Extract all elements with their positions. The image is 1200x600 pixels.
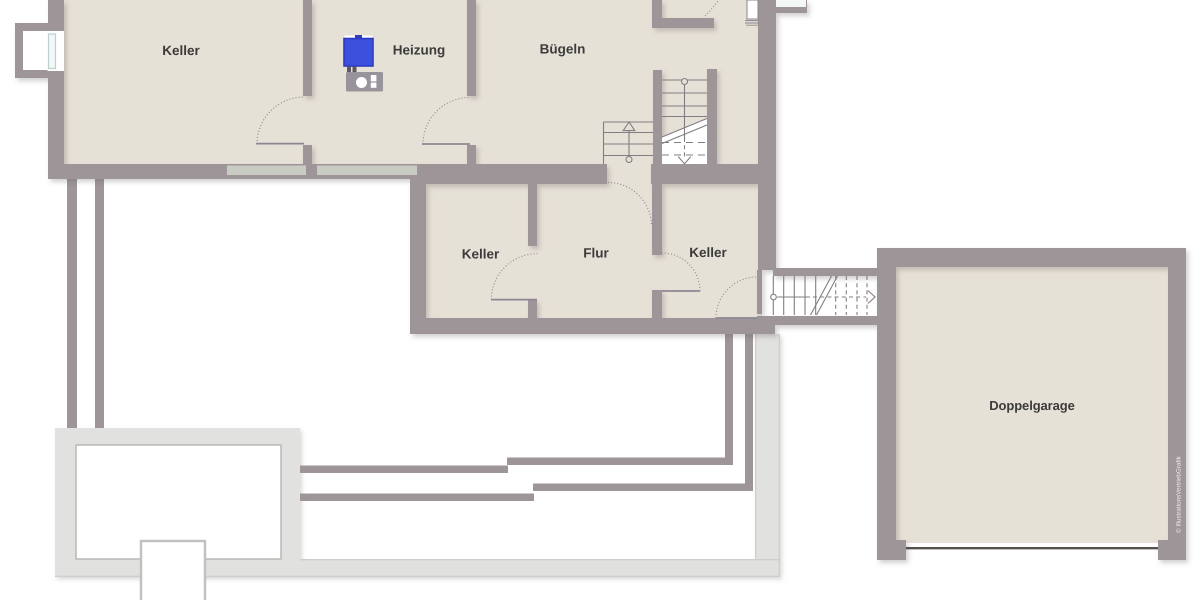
svg-text:Keller: Keller [689, 245, 727, 260]
svg-text:Heizung: Heizung [393, 43, 446, 58]
svg-text:© IllustrationsVertriebGrafik: © IllustrationsVertriebGrafik [1176, 455, 1183, 533]
svg-text:Doppelgarage: Doppelgarage [989, 398, 1074, 413]
svg-text:Flur: Flur [583, 245, 609, 260]
svg-text:Keller: Keller [462, 246, 500, 261]
svg-text:Keller: Keller [162, 43, 200, 58]
svg-text:Bügeln: Bügeln [540, 42, 586, 57]
